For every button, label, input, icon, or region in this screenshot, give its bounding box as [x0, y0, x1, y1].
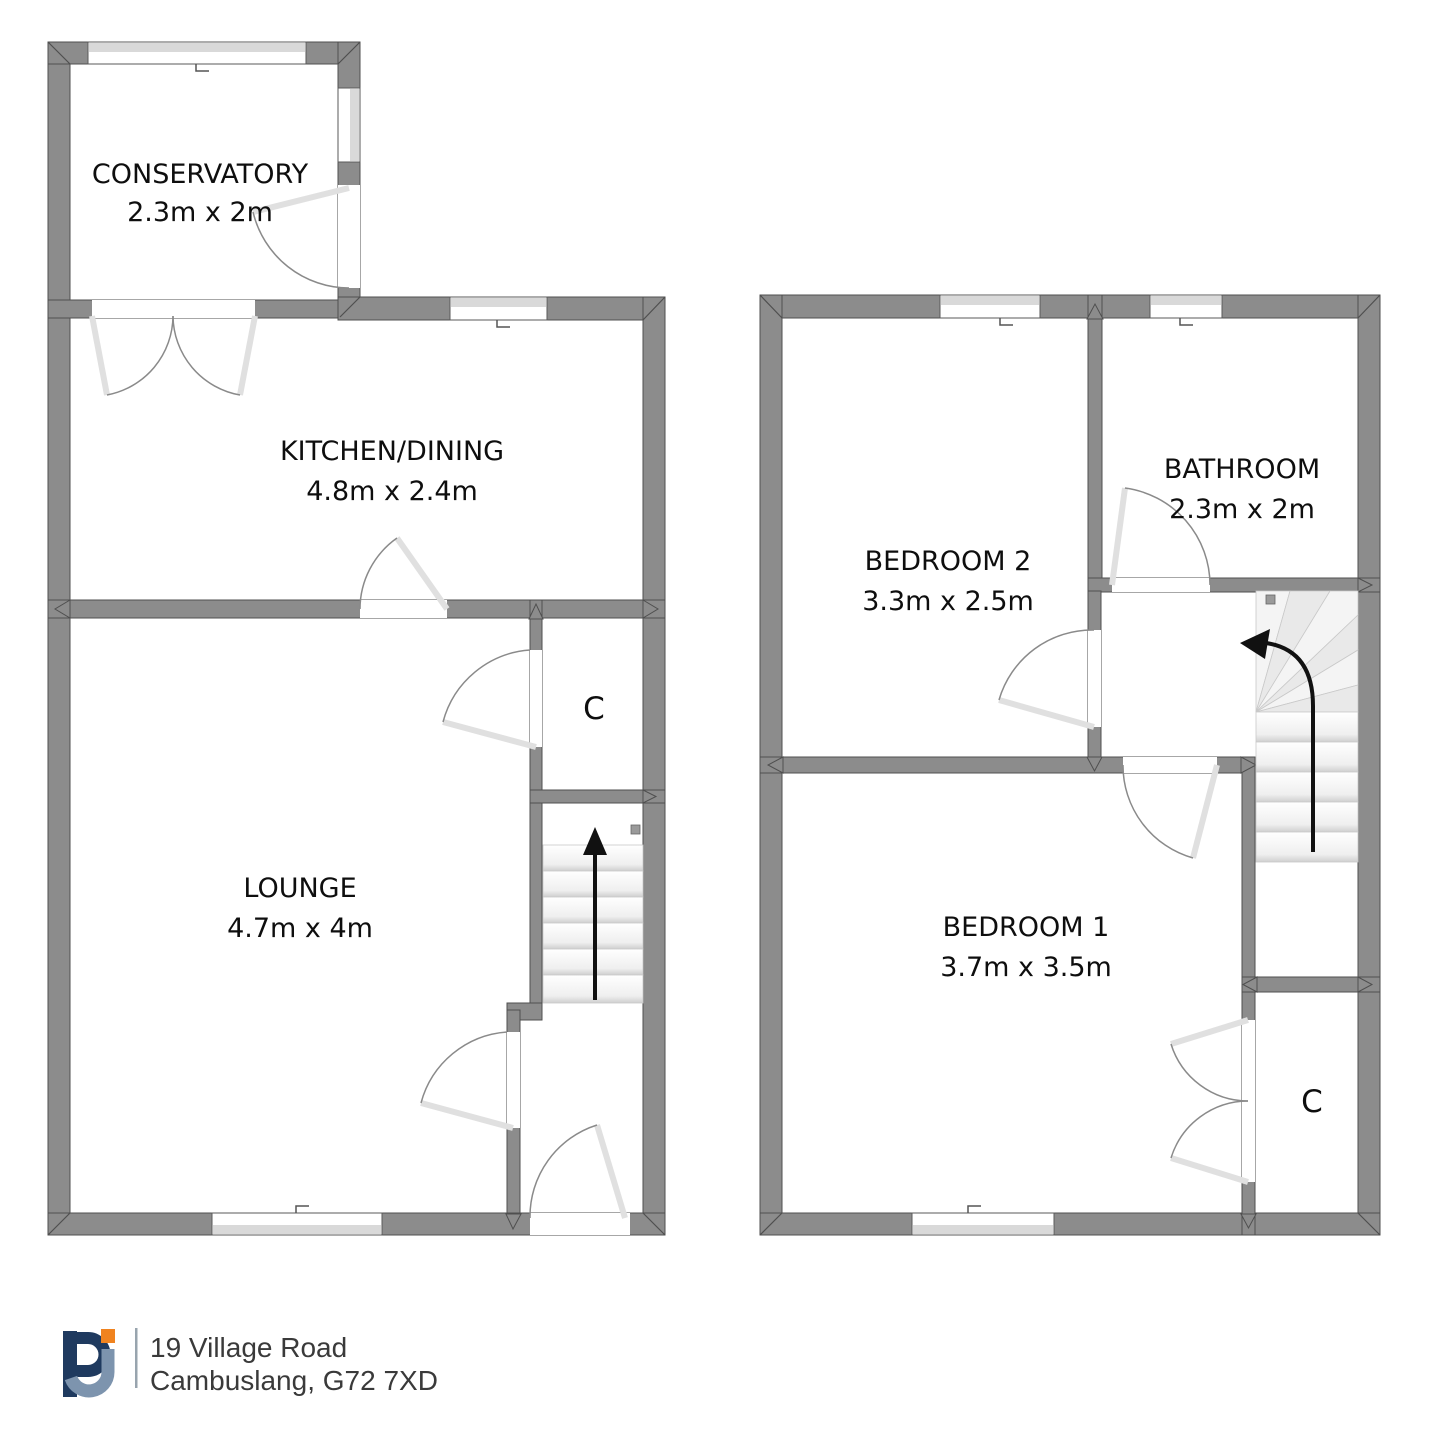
door-opening	[338, 185, 360, 288]
closet-double-door	[1171, 1020, 1248, 1182]
door-opening	[360, 600, 447, 618]
room-name-kitchen: KITCHEN/DINING	[280, 436, 504, 467]
door-opening	[507, 1032, 520, 1128]
window-sill-mark	[968, 1206, 981, 1213]
door-opening	[1123, 757, 1217, 773]
stair-marker	[1266, 595, 1275, 604]
wall	[760, 1213, 1380, 1235]
floorplan-page: CONSERVATORY 2.3m x 2m KITCHEN/DINING 4.…	[0, 0, 1455, 1453]
window	[88, 42, 306, 71]
room-name-bathroom: BATHROOM	[1164, 454, 1320, 485]
stairs-ground	[543, 825, 643, 1003]
window	[212, 1206, 382, 1235]
door-openings	[92, 185, 630, 1235]
window	[338, 88, 360, 162]
door-opening	[530, 650, 542, 747]
window	[940, 295, 1040, 325]
stair-tread	[1256, 712, 1358, 742]
hall-door	[421, 1032, 513, 1128]
closet-label-first: C	[1301, 1084, 1323, 1120]
footer: 19 Village Road Cambuslang, G72 7XD	[70, 1328, 438, 1397]
window	[912, 1206, 1054, 1235]
window	[450, 297, 547, 327]
closet-label-ground: C	[583, 691, 605, 727]
logo-j-dot	[101, 1329, 115, 1343]
room-dims-conservatory: 2.3m x 2m	[127, 197, 273, 228]
room-name-lounge: LOUNGE	[243, 873, 356, 904]
room-name-bedroom1: BEDROOM 1	[943, 912, 1110, 943]
agency-logo	[70, 1329, 115, 1397]
window-sill-mark	[497, 320, 510, 327]
wall	[760, 295, 1380, 318]
room-dims-bedroom2: 3.3m x 2.5m	[862, 586, 1034, 617]
french-door	[92, 316, 255, 395]
ground-floor-plan: CONSERVATORY 2.3m x 2m KITCHEN/DINING 4.…	[48, 42, 665, 1235]
address-line-1: 19 Village Road	[150, 1332, 347, 1363]
room-dims-lounge: 4.7m x 4m	[227, 913, 373, 944]
first-floor-plan: BEDROOM 2 3.3m x 2.5m BATHROOM 2.3m x 2m…	[760, 295, 1380, 1235]
door-openings	[1088, 578, 1255, 1182]
kitchen-door	[360, 538, 447, 609]
wall	[48, 600, 665, 618]
wall	[48, 42, 70, 1235]
room-name-conservatory: CONSERVATORY	[92, 159, 309, 190]
window	[1150, 295, 1222, 325]
stair-tread	[1256, 802, 1358, 832]
stair-tread	[1256, 832, 1358, 862]
wall	[643, 297, 665, 1235]
room-dims-kitchen: 4.8m x 2.4m	[306, 476, 478, 507]
bedroom2-door	[999, 630, 1094, 727]
door-opening	[1112, 578, 1210, 592]
address-line-2: Cambuslang, G72 7XD	[150, 1365, 438, 1396]
room-name-bedroom2: BEDROOM 2	[865, 546, 1032, 577]
door-opening	[530, 1213, 630, 1235]
window-sill-mark	[1180, 318, 1193, 325]
stair-tread	[1256, 772, 1358, 802]
closet-door	[443, 650, 536, 747]
room-dims-bedroom1: 3.7m x 3.5m	[940, 952, 1112, 983]
bedroom1-door	[1123, 765, 1217, 858]
entrance-door	[530, 1125, 625, 1218]
footer-divider	[135, 1328, 138, 1388]
window-sill-mark	[196, 64, 209, 71]
wall	[1088, 295, 1102, 591]
stair-marker	[631, 825, 640, 834]
window-sill-mark	[296, 1206, 309, 1213]
door-opening	[92, 300, 255, 318]
stairs-first-floor	[1240, 591, 1358, 862]
window-sill-mark	[1000, 318, 1013, 325]
door-opening	[1088, 630, 1101, 727]
wall	[1358, 295, 1380, 1235]
floorplan-canvas: CONSERVATORY 2.3m x 2m KITCHEN/DINING 4.…	[0, 0, 1455, 1453]
doors	[92, 188, 625, 1218]
stair-tread	[1256, 742, 1358, 772]
room-dims-bathroom: 2.3m x 2m	[1169, 494, 1315, 525]
